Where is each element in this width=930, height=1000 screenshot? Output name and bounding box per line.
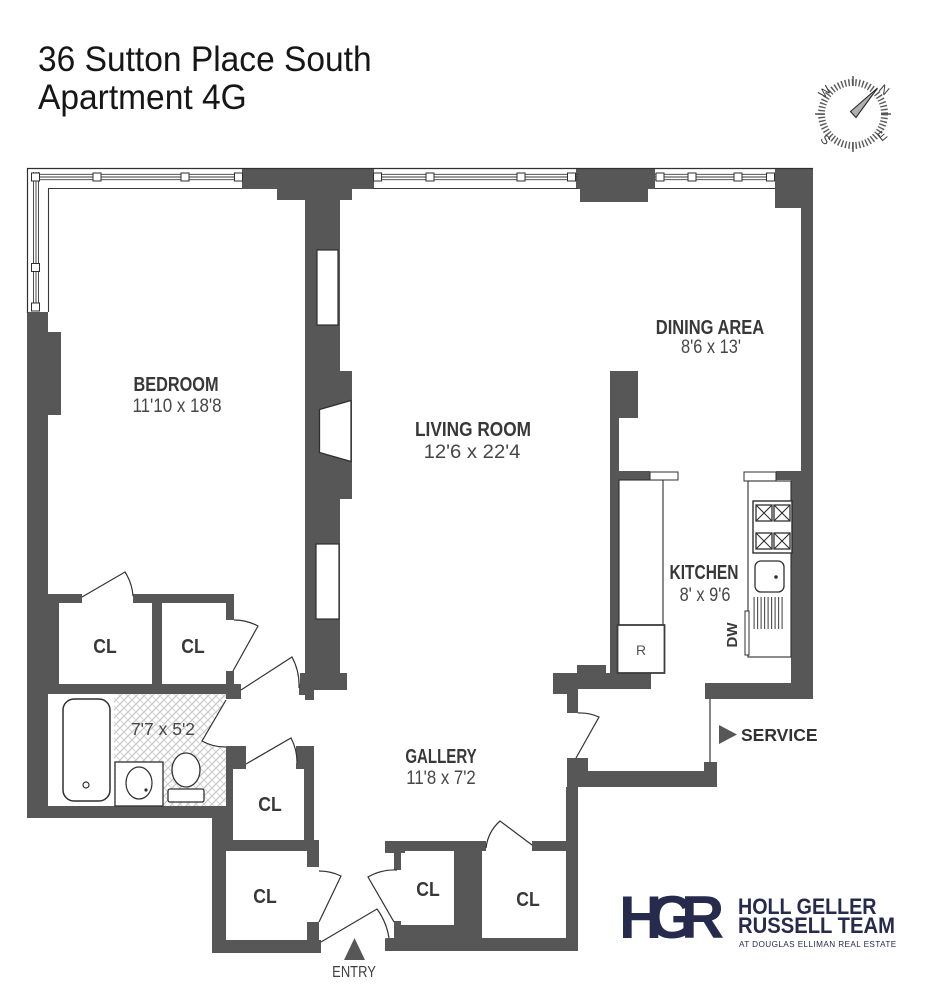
- svg-text:7'7 x 5'2: 7'7 x 5'2: [131, 719, 195, 739]
- svg-text:SERVICE: SERVICE: [741, 725, 818, 745]
- svg-text:Apartment 4G: Apartment 4G: [38, 78, 247, 117]
- svg-text:12'6 x 22'4: 12'6 x 22'4: [424, 441, 521, 463]
- svg-text:HGR: HGR: [619, 884, 724, 951]
- svg-text:36 Sutton Place South: 36 Sutton Place South: [38, 40, 372, 79]
- svg-text:AT DOUGLAS ELLIMAN REAL ESTATE: AT DOUGLAS ELLIMAN REAL ESTATE: [739, 940, 897, 949]
- svg-text:8' x 9'6: 8' x 9'6: [680, 584, 731, 606]
- svg-text:11'10 x 18'8: 11'10 x 18'8: [132, 394, 221, 416]
- svg-text:CL: CL: [416, 878, 439, 900]
- svg-text:CL: CL: [181, 635, 204, 657]
- svg-text:ENTRY: ENTRY: [332, 964, 376, 982]
- svg-text:RUSSELL TEAM: RUSSELL TEAM: [738, 914, 895, 938]
- svg-text:DW: DW: [724, 622, 741, 648]
- svg-text:GALLERY: GALLERY: [405, 745, 477, 768]
- svg-text:CL: CL: [253, 885, 276, 907]
- svg-text:11'8 x 7'2: 11'8 x 7'2: [406, 767, 475, 788]
- svg-text:CL: CL: [93, 635, 116, 657]
- svg-text:LIVING ROOM: LIVING ROOM: [415, 418, 531, 440]
- svg-text:BEDROOM: BEDROOM: [133, 372, 218, 395]
- svg-text:8'6 x 13': 8'6 x 13': [681, 336, 741, 358]
- svg-text:CL: CL: [258, 793, 281, 815]
- svg-text:CL: CL: [516, 888, 539, 910]
- svg-text:R: R: [636, 642, 646, 658]
- svg-text:KITCHEN: KITCHEN: [670, 561, 739, 583]
